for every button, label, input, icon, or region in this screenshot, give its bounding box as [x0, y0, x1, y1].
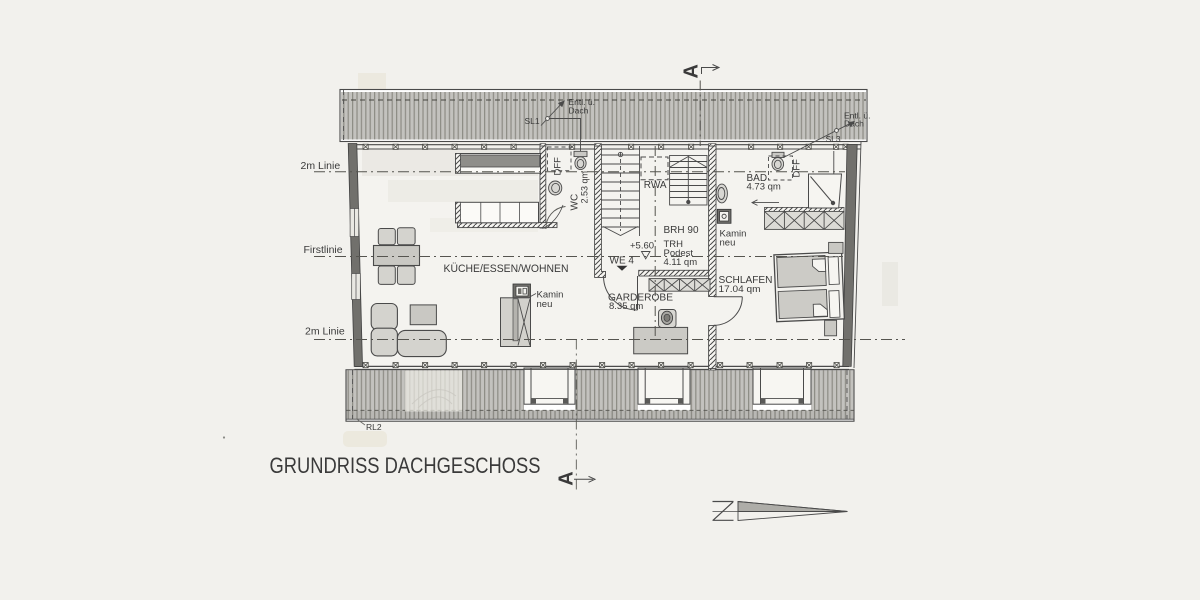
svg-text:17.04 qm: 17.04 qm — [719, 284, 761, 295]
svg-text:DFF: DFF — [553, 157, 564, 176]
svg-text:2m Linie: 2m Linie — [301, 160, 341, 172]
svg-text:SL1: SL1 — [525, 116, 540, 126]
svg-text:DFF: DFF — [792, 159, 803, 178]
svg-text:WE 4: WE 4 — [610, 256, 635, 267]
svg-text:SL3: SL3 — [826, 134, 841, 144]
svg-text:4.73 qm: 4.73 qm — [747, 182, 781, 193]
svg-text:Firstlinie: Firstlinie — [304, 244, 343, 256]
svg-text:Dach: Dach — [844, 118, 864, 128]
svg-text:BRH 90: BRH 90 — [664, 225, 699, 236]
svg-text:8.35 qm: 8.35 qm — [609, 301, 643, 312]
svg-text:RWA: RWA — [644, 180, 667, 191]
svg-text:2.53 qm: 2.53 qm — [580, 171, 590, 204]
svg-text:RL2: RL2 — [366, 422, 382, 432]
svg-text:neu: neu — [720, 237, 736, 248]
svg-text:Dach: Dach — [569, 106, 589, 116]
svg-text:neu: neu — [537, 299, 553, 310]
svg-text:4.11 qm: 4.11 qm — [664, 257, 698, 268]
svg-text:A: A — [681, 64, 703, 78]
svg-text:+5.60: +5.60 — [630, 240, 654, 251]
svg-text:KÜCHE/ESSEN/WOHNEN: KÜCHE/ESSEN/WOHNEN — [444, 263, 569, 275]
svg-text:2m Linie: 2m Linie — [305, 326, 345, 338]
svg-text:GRUNDRISS DACHGESCHOSS: GRUNDRISS DACHGESCHOSS — [270, 453, 541, 478]
svg-text:A: A — [556, 471, 578, 485]
